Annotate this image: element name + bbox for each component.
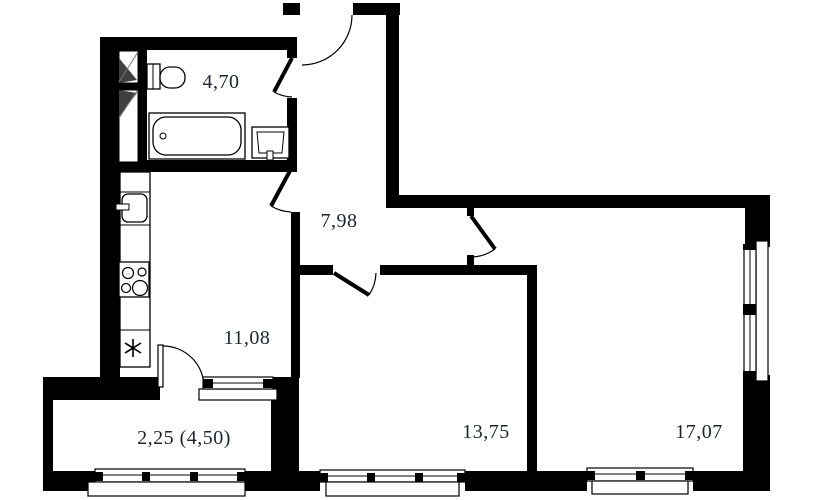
bathtub-icon (149, 113, 245, 159)
room-label-room-2: 17,07 (675, 421, 723, 443)
room-label-room-1: 13,75 (462, 421, 510, 443)
window-mullion (367, 473, 375, 482)
wall (527, 267, 537, 471)
window-cap (320, 473, 328, 482)
wall (386, 13, 399, 208)
window-cap (587, 471, 595, 480)
wall (693, 471, 770, 491)
wall-door-stub (467, 208, 474, 216)
wall (745, 195, 770, 247)
wall (465, 471, 587, 491)
room-label-balcony: 2,25 (4,50) (137, 427, 231, 449)
window-cap (263, 379, 273, 388)
wall (291, 212, 300, 378)
stove-icon (119, 262, 149, 297)
kitchen-window (199, 377, 277, 400)
window-mullion (743, 304, 756, 315)
window-cap (237, 472, 245, 481)
wall (245, 471, 320, 491)
wall (287, 50, 297, 58)
wall (380, 265, 537, 275)
window-sill (592, 481, 688, 494)
window-mullion (415, 473, 423, 482)
floor-plan: 4,70 7,98 11,08 13,75 17,07 2,25 (4,50) (0, 0, 827, 500)
floor-plan-svg: 4,70 7,98 11,08 13,75 17,07 2,25 (4,50) (0, 0, 827, 500)
window-cap (95, 472, 103, 481)
wall (43, 471, 95, 491)
kitchen-sink-tap (116, 204, 129, 210)
wall (293, 265, 333, 275)
window-cap (685, 471, 693, 480)
balcony-door-leaf (158, 345, 163, 387)
window-cap (457, 473, 465, 482)
window-sill (199, 389, 277, 400)
washbasin-icon (252, 127, 289, 160)
wall (43, 377, 160, 400)
wall (390, 195, 770, 208)
window-sill (326, 482, 459, 496)
window-mullion (142, 472, 150, 481)
washbasin-bowl (257, 132, 284, 153)
washbasin-tap (267, 151, 273, 160)
room-label-hallway: 7,98 (321, 210, 358, 232)
balcony-glazing (88, 469, 245, 496)
wall (283, 3, 300, 15)
room-2-side-window (743, 241, 768, 381)
window-sill (88, 482, 245, 496)
room-2-window (587, 468, 693, 494)
toilet-icon (147, 64, 185, 89)
toilet-bowl (160, 67, 185, 88)
room-label-bathroom: 4,70 (203, 71, 240, 93)
vent-shafts (119, 51, 138, 162)
bathtub-drain (160, 133, 166, 139)
kitchen-fixtures (116, 172, 150, 367)
room-label-kitchen: 11,08 (224, 327, 271, 349)
room-1-window (320, 470, 465, 496)
window-mullion (190, 472, 198, 481)
window-mullion (636, 471, 645, 480)
window-cap (743, 244, 756, 250)
window-cap (743, 371, 756, 377)
window-sill (756, 241, 768, 381)
